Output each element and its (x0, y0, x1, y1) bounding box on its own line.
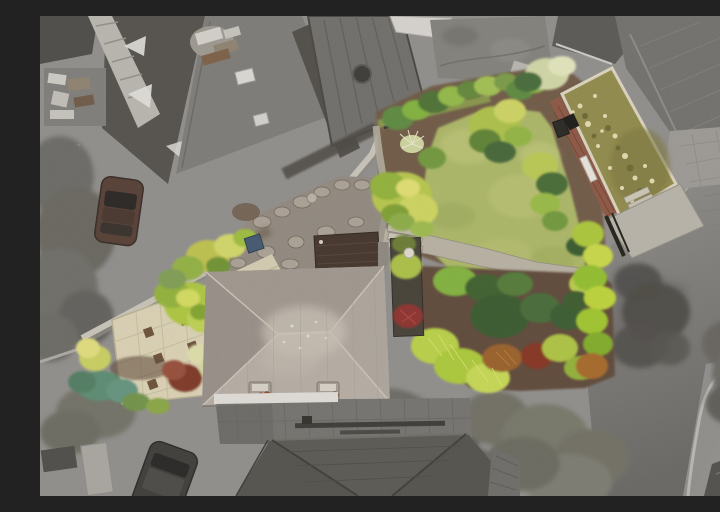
aerial-photo (40, 16, 720, 496)
aerial-photo-canvas (40, 16, 720, 496)
photo-grain-overlay (40, 16, 720, 496)
